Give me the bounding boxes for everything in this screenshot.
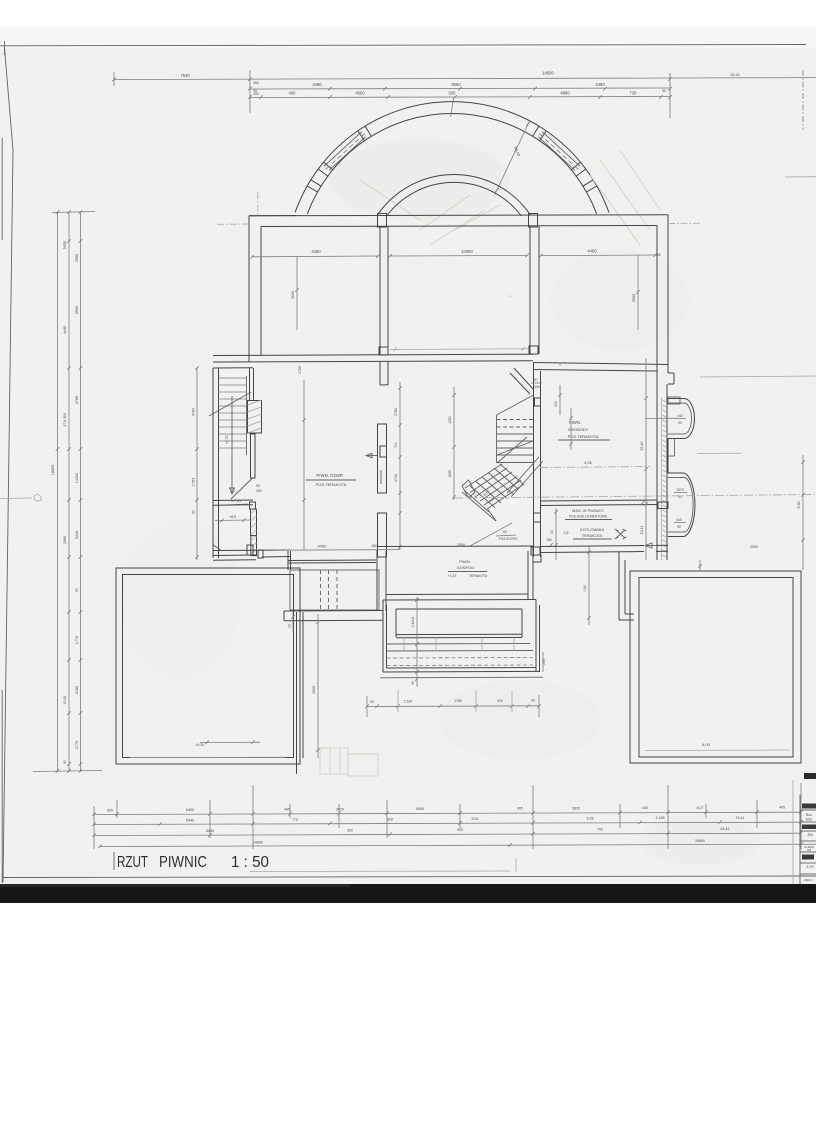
svg-text:5440: 5440	[186, 818, 194, 822]
svg-text:90: 90	[411, 681, 415, 685]
svg-text:90: 90	[662, 89, 666, 93]
svg-text:A-TE: A-TE	[806, 865, 813, 869]
svg-text:1770: 1770	[75, 636, 79, 644]
svg-text:200: 200	[256, 489, 262, 493]
svg-text:8,07: 8,07	[697, 806, 704, 810]
svg-text:TERAKOTA: TERAKOTA	[582, 534, 603, 538]
svg-text:90: 90	[678, 421, 682, 425]
svg-text:6400: 6400	[186, 808, 194, 812]
svg-text:905: 905	[457, 828, 463, 832]
svg-text:23,46: 23,46	[640, 442, 644, 451]
svg-text:1780: 1780	[454, 699, 462, 703]
svg-text:7540: 7540	[180, 73, 190, 78]
svg-text:250: 250	[542, 659, 546, 665]
svg-text:PIWN.: PIWN.	[459, 559, 471, 564]
svg-text:1780: 1780	[394, 408, 398, 416]
svg-text:AD2: AD2	[806, 818, 812, 822]
svg-text:1753: 1753	[192, 478, 196, 486]
svg-text:905: 905	[107, 809, 113, 813]
svg-text:90: 90	[75, 588, 79, 592]
svg-text:5050: 5050	[63, 241, 67, 249]
svg-text:4480: 4480	[587, 249, 597, 254]
svg-text:770: 770	[292, 818, 298, 822]
svg-text:3180: 3180	[75, 686, 79, 694]
svg-text:445: 445	[779, 805, 785, 809]
svg-text:6,00: 6,00	[196, 743, 203, 747]
svg-text:POS.TERAKOTA: POS.TERAKOTA	[568, 434, 599, 439]
svg-text:2550: 2550	[750, 545, 758, 549]
svg-text:3440: 3440	[75, 531, 79, 539]
svg-text:10060: 10060	[461, 249, 473, 254]
svg-text:4050: 4050	[355, 91, 365, 96]
svg-text:17,9,110: 17,9,110	[63, 413, 67, 427]
svg-text:400: 400	[289, 91, 297, 96]
svg-text:90: 90	[192, 510, 196, 514]
svg-text:GOSPOD.: GOSPOD.	[457, 565, 476, 570]
svg-text:360: 360	[253, 81, 259, 85]
svg-text:0,90: 0,90	[583, 585, 587, 592]
svg-text:445: 445	[642, 806, 648, 810]
svg-text:4140: 4140	[63, 696, 67, 704]
svg-text:4780: 4780	[298, 366, 302, 374]
svg-text:730: 730	[630, 91, 638, 96]
svg-text:POS.TERAKOTA: POS.TERAKOTA	[316, 482, 347, 487]
svg-text:9450: 9450	[416, 807, 424, 811]
svg-text:440: 440	[676, 518, 682, 522]
svg-text:440: 440	[677, 414, 683, 418]
svg-text:24650: 24650	[253, 840, 264, 844]
svg-text:TERAKOTA: TERAKOTA	[469, 574, 488, 578]
svg-text:445: 445	[284, 808, 290, 812]
svg-text:1,520: 1,520	[404, 700, 413, 704]
svg-text:90: 90	[531, 699, 535, 703]
svg-text:90: 90	[288, 624, 292, 628]
svg-text:90: 90	[256, 484, 260, 488]
svg-text:+1,57: +1,57	[447, 574, 456, 578]
svg-text:702: 702	[597, 828, 603, 832]
svg-text:4780: 4780	[192, 408, 196, 416]
svg-text:x9,5: x9,5	[230, 515, 237, 519]
svg-text:4880: 4880	[560, 91, 570, 96]
svg-text:Bou: Bou	[806, 813, 812, 817]
svg-text:PIWNIC: PIWNIC	[159, 854, 207, 871]
svg-text:2770: 2770	[75, 741, 79, 749]
svg-text:2960: 2960	[75, 254, 79, 262]
svg-text:64,42: 64,42	[721, 827, 730, 831]
svg-text:4480: 4480	[595, 82, 605, 87]
svg-text:3500: 3500	[291, 291, 295, 299]
svg-text:90: 90	[63, 760, 67, 764]
svg-text:905: 905	[554, 401, 558, 407]
svg-text:8,00: 8,00	[702, 743, 709, 747]
svg-text:4,05: 4,05	[584, 461, 591, 465]
svg-text:302: 302	[347, 829, 353, 833]
svg-text:500: 500	[449, 91, 457, 96]
svg-text:180: 180	[371, 544, 377, 548]
svg-text:4920: 4920	[312, 686, 316, 694]
svg-text:ORUA: ORUA	[804, 878, 813, 882]
svg-text:POS.AND.CEMENTOWA: POS.AND.CEMENTOWA	[569, 515, 608, 519]
svg-text:905: 905	[517, 807, 523, 811]
svg-text:400: 400	[253, 92, 259, 96]
svg-text:3,28: 3,28	[587, 817, 594, 821]
svg-text:4480: 4480	[311, 249, 321, 254]
svg-text:90: 90	[370, 700, 374, 704]
svg-text:4x30: 4x30	[63, 326, 67, 334]
svg-text:14200: 14200	[75, 473, 79, 484]
svg-text:90: 90	[550, 530, 554, 534]
svg-text:2690: 2690	[63, 536, 67, 544]
svg-text:24650: 24650	[695, 839, 705, 843]
svg-text:↓: ↓	[509, 293, 511, 298]
svg-text:2,8: 2,8	[564, 531, 569, 535]
svg-text:3500: 3500	[632, 294, 636, 302]
svg-text:1070: 1070	[676, 488, 684, 492]
svg-text:13,41: 13,41	[640, 526, 644, 535]
svg-text:3820: 3820	[572, 806, 580, 810]
svg-text:+2,70: +2,70	[225, 435, 229, 444]
svg-text:9050: 9050	[451, 82, 461, 87]
svg-text:710: 710	[394, 442, 398, 448]
svg-text:14500: 14500	[542, 71, 554, 76]
svg-text:AN: AN	[807, 848, 811, 852]
svg-text:KOTLOWNIA: KOTLOWNIA	[580, 527, 604, 532]
svg-text:4480: 4480	[312, 82, 322, 87]
svg-text:18650: 18650	[51, 465, 55, 476]
svg-text:JEA: JEA	[807, 833, 814, 837]
svg-text:1,5x0,8: 1,5x0,8	[411, 616, 415, 627]
svg-text:4,188: 4,188	[656, 816, 665, 820]
svg-text:185: 185	[546, 538, 552, 542]
svg-text:POS.KLEPKI: POS.KLEPKI	[499, 537, 518, 541]
svg-text:1 : 50: 1 : 50	[231, 854, 269, 871]
svg-text:1845: 1845	[448, 470, 452, 478]
svg-text:5900: 5900	[75, 306, 79, 314]
svg-text:x 7,05: x 7,05	[231, 499, 241, 503]
svg-text:2730: 2730	[394, 474, 398, 482]
svg-text:4780: 4780	[75, 396, 79, 404]
svg-text:90: 90	[677, 525, 681, 529]
svg-text:440: 440	[655, 253, 661, 257]
svg-text:1280: 1280	[448, 416, 452, 424]
svg-text:420: 420	[497, 699, 503, 703]
svg-text:67: 67	[534, 378, 538, 382]
svg-text:15,41: 15,41	[730, 72, 741, 77]
svg-text:5,01: 5,01	[472, 817, 479, 821]
svg-text:PIWN. GOSP.: PIWN. GOSP.	[316, 473, 343, 478]
svg-text:60: 60	[503, 530, 507, 534]
svg-text:3020: 3020	[336, 807, 344, 811]
svg-text:76,41: 76,41	[736, 816, 745, 820]
svg-text:RZUT: RZUT	[117, 854, 148, 871]
svg-text:328: 328	[387, 817, 393, 821]
svg-text:MAG. W PIWNICY: MAG. W PIWNICY	[572, 509, 604, 513]
svg-text:4450: 4450	[318, 544, 328, 549]
svg-text:300: 300	[534, 385, 540, 389]
svg-text:5,90: 5,90	[797, 502, 801, 509]
